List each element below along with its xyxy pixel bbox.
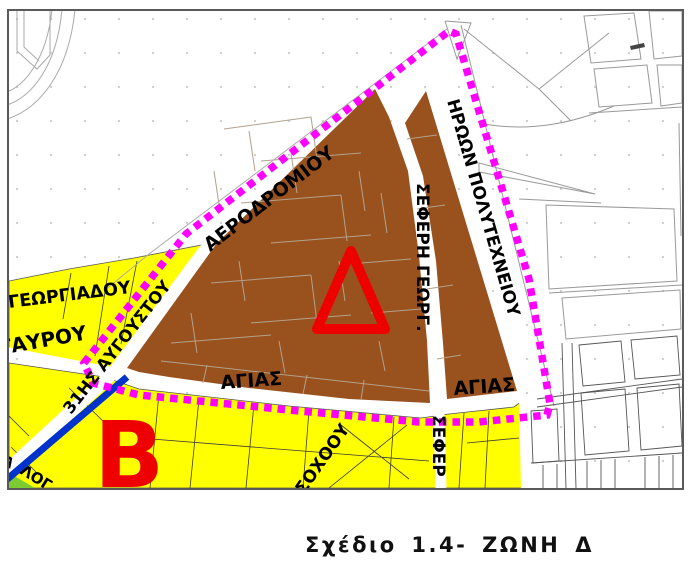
- label-agias-1: ΑΓΙΑΣ: [220, 368, 283, 394]
- label-seferi-georg: ΣΕΦΕΡΗ ΓΕΩΡΓ.: [412, 183, 432, 332]
- label-agias-2: ΑΓΙΑΣ: [453, 374, 516, 400]
- label-sefer: ΣΕΦΕΡ: [428, 415, 448, 477]
- zoning-map: ΑΕΡΟΔΡΟΜΙΟΥ ΗΡΩΩΝ ΠΟΛΥΤΕΧΝΕΙΟΥ ΣΕΦΕΡΗ ΓΕ…: [7, 9, 684, 490]
- map-caption: Σχέδιο 1.4- ΖΩΝΗ Δ: [305, 533, 594, 557]
- zone-beta-marker: Β: [94, 402, 164, 488]
